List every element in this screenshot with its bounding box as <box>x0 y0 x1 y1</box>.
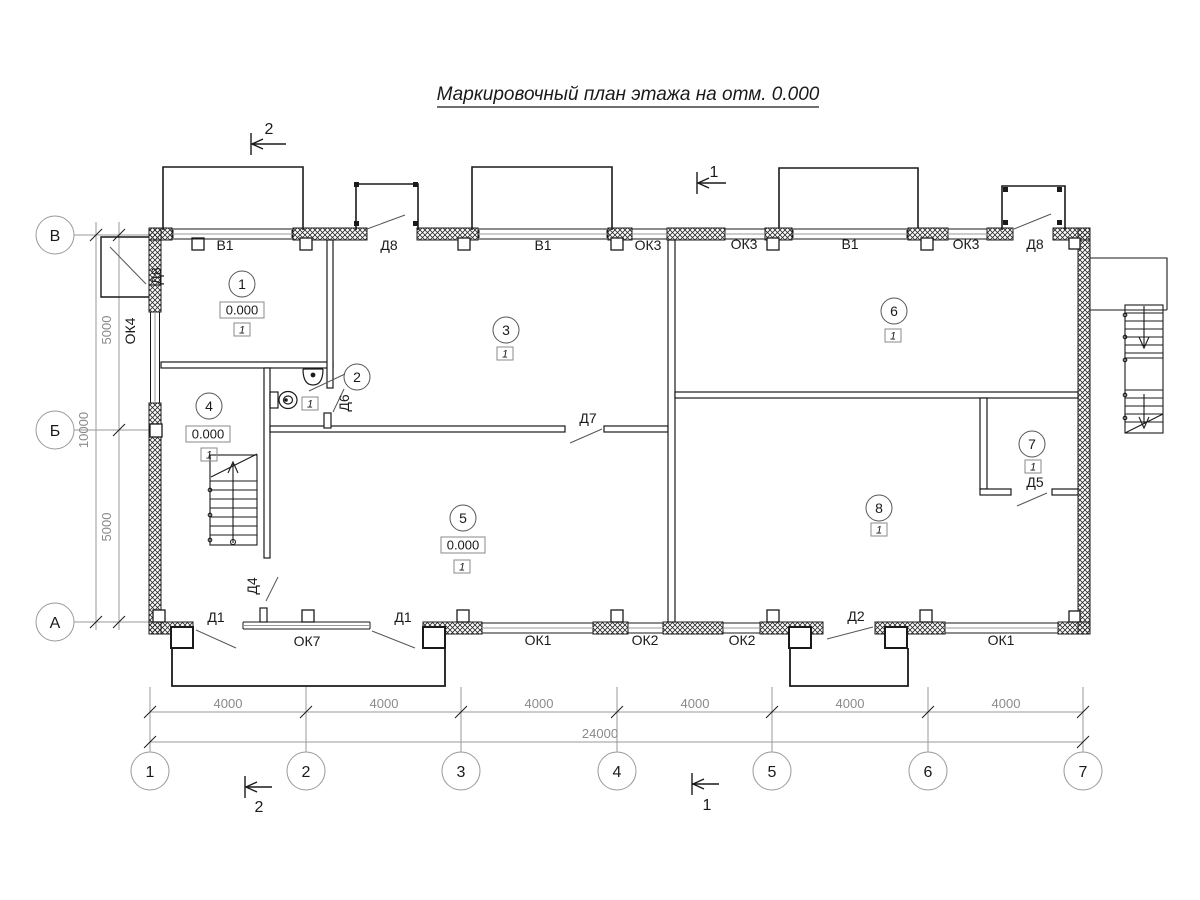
drawing-title: Маркировочный план этажа на отм. 0.000 <box>437 84 820 105</box>
room-7-number: 7 <box>1028 436 1036 452</box>
dim-bottom-3: 4000 <box>525 696 554 711</box>
room-1-elevation: 0.000 <box>226 303 259 318</box>
room-1-number: 1 <box>238 276 246 292</box>
axis-label-B: Б <box>50 423 61 440</box>
label-ok3-3: ОК3 <box>953 236 980 252</box>
fixtures <box>270 369 323 409</box>
dim-left-total: 10000 <box>76 412 91 448</box>
section-1-bottom: 1 <box>692 773 719 814</box>
toilet-icon <box>270 392 297 409</box>
axis-label-A: А <box>50 615 61 632</box>
axis-markers <box>36 216 1102 790</box>
axis-label-7: 7 <box>1079 764 1088 781</box>
room-4-number: 4 <box>205 398 213 414</box>
axis-label-2: 2 <box>302 764 311 781</box>
se-porch <box>790 648 908 686</box>
room-4-type: 1 <box>206 450 212 462</box>
label-d8-west: Д8 <box>148 267 164 284</box>
dim-left-lower: 5000 <box>99 513 114 542</box>
label-ok1-1: ОК1 <box>525 632 552 648</box>
stairs-interior <box>208 454 257 545</box>
room-3-number: 3 <box>502 322 510 338</box>
section-2-bottom: 2 <box>245 776 272 816</box>
label-v1-3: В1 <box>841 236 858 252</box>
room-6-type: 1 <box>890 331 896 343</box>
section-1-top: 1 <box>697 164 726 194</box>
interior-walls <box>161 240 1078 622</box>
room-4-annotation: 4 0.000 1 <box>186 393 230 462</box>
room-2-type: 1 <box>307 399 313 411</box>
room-7-annotation: 7 1 <box>1019 431 1045 474</box>
axis-label-V: В <box>50 228 61 245</box>
axis-label-5: 5 <box>768 764 777 781</box>
room-7-type: 1 <box>1030 462 1036 474</box>
label-ok2-2: ОК2 <box>729 632 756 648</box>
room-1-annotation: 1 0.000 1 <box>220 271 264 337</box>
section-1-top-label: 1 <box>710 164 719 181</box>
label-d7: Д7 <box>579 410 596 426</box>
axis-label-3: 3 <box>457 764 466 781</box>
door-porch-2 <box>1002 186 1065 230</box>
room-8-type: 1 <box>876 525 882 537</box>
room-8-annotation: 8 1 <box>866 495 892 537</box>
room-6-annotation: 6 1 <box>881 298 907 343</box>
dim-bottom-2: 4000 <box>370 696 399 711</box>
room-1-type: 1 <box>239 325 245 337</box>
room-4-elevation: 0.000 <box>192 427 225 442</box>
canopy-2 <box>472 167 612 230</box>
section-2-top-label: 2 <box>265 121 274 138</box>
label-d8-2: Д8 <box>1026 236 1043 252</box>
dim-bottom-4: 4000 <box>681 696 710 711</box>
label-ok1-2: ОК1 <box>988 632 1015 648</box>
axis-label-4: 4 <box>613 764 622 781</box>
room-3-annotation: 3 1 <box>493 317 519 361</box>
stairs-exterior <box>1090 258 1167 433</box>
room-annotations: 1 0.000 1 2 1 3 1 4 0.000 1 <box>186 271 1045 574</box>
label-d6: Д6 <box>336 394 352 411</box>
room-5-elevation: 0.000 <box>447 538 480 553</box>
label-d5: Д5 <box>1026 474 1043 490</box>
canopy-3 <box>779 168 918 228</box>
axis-labels: В Б А 1 2 3 4 5 6 7 <box>50 228 1088 781</box>
title-block: Маркировочный план этажа на отм. 0.000 <box>437 84 820 107</box>
dim-bottom-5: 4000 <box>836 696 865 711</box>
door-porch-1 <box>356 184 418 230</box>
axis-label-1: 1 <box>146 764 155 781</box>
dim-bottom-1: 4000 <box>214 696 243 711</box>
dim-bottom-6: 4000 <box>992 696 1021 711</box>
label-d1-1: Д1 <box>207 609 224 625</box>
label-v1-1: В1 <box>216 237 233 253</box>
label-ok3-1: ОК3 <box>635 237 662 253</box>
dim-bottom-total: 24000 <box>582 726 618 741</box>
opening-labels: В1 Д8 В1 ОК3 ОК3 В1 ОК3 Д8 Д1 ОК7 Д1 ОК1… <box>122 236 1044 649</box>
room-2-number: 2 <box>353 369 361 385</box>
axis-label-6: 6 <box>924 764 933 781</box>
floor-plan-page: Маркировочный план этажа на отм. 0.000 <box>0 0 1200 900</box>
label-v1-2: В1 <box>534 237 551 253</box>
room-5-annotation: 5 0.000 1 <box>441 505 485 574</box>
room-3-type: 1 <box>502 349 508 361</box>
floor-plan-drawing: Маркировочный план этажа на отм. 0.000 <box>0 0 1200 900</box>
room-6-number: 6 <box>890 303 898 319</box>
sw-porch <box>172 648 445 686</box>
room-8-number: 8 <box>875 500 883 516</box>
label-d4: Д4 <box>244 577 260 594</box>
door-leaf-d6 <box>324 413 331 428</box>
label-d8-1: Д8 <box>380 237 397 253</box>
canopy-1 <box>163 167 303 230</box>
section-2-top: 2 <box>251 121 286 155</box>
section-1-bottom-label: 1 <box>703 797 712 814</box>
label-ok7: ОК7 <box>294 633 321 649</box>
room-5-number: 5 <box>459 510 467 526</box>
label-ok4: ОК4 <box>122 317 138 344</box>
label-ok3-2: ОК3 <box>731 236 758 252</box>
section-2-bottom-label: 2 <box>255 799 264 816</box>
label-d1-2: Д1 <box>394 609 411 625</box>
west-porch <box>101 237 149 297</box>
sink-icon <box>303 369 323 385</box>
door-leaf-d4 <box>260 608 267 622</box>
label-d2: Д2 <box>847 608 864 624</box>
label-ok2-1: ОК2 <box>632 632 659 648</box>
dim-left-upper: 5000 <box>99 316 114 345</box>
room-5-type: 1 <box>459 562 465 574</box>
